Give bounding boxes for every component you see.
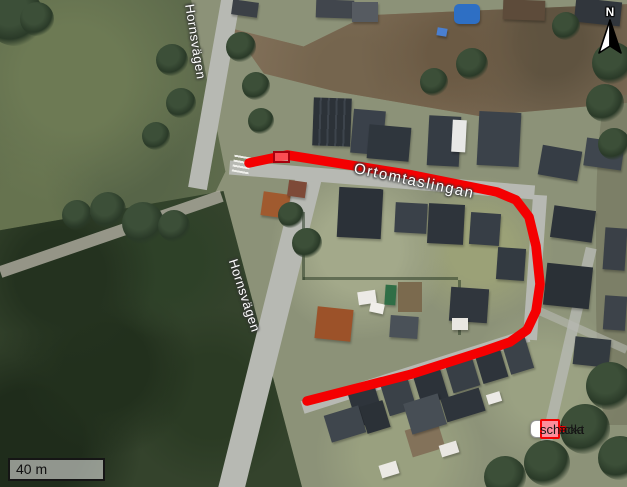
- scale-bar-label: 40 m: [16, 461, 47, 477]
- scale-bar: 40 m: [8, 458, 105, 481]
- legend: Sträcka schackt: [530, 420, 550, 438]
- aerial-map: Hornsvägen Hornsvägen Ortomtaslingan N 4…: [0, 0, 627, 487]
- north-arrow-icon: [596, 17, 624, 57]
- route-line: [249, 155, 540, 401]
- schackt-marker: [273, 151, 290, 163]
- north-arrow: N: [596, 5, 624, 57]
- legend-label: schackt: [540, 422, 584, 437]
- route-overlay: [0, 0, 627, 487]
